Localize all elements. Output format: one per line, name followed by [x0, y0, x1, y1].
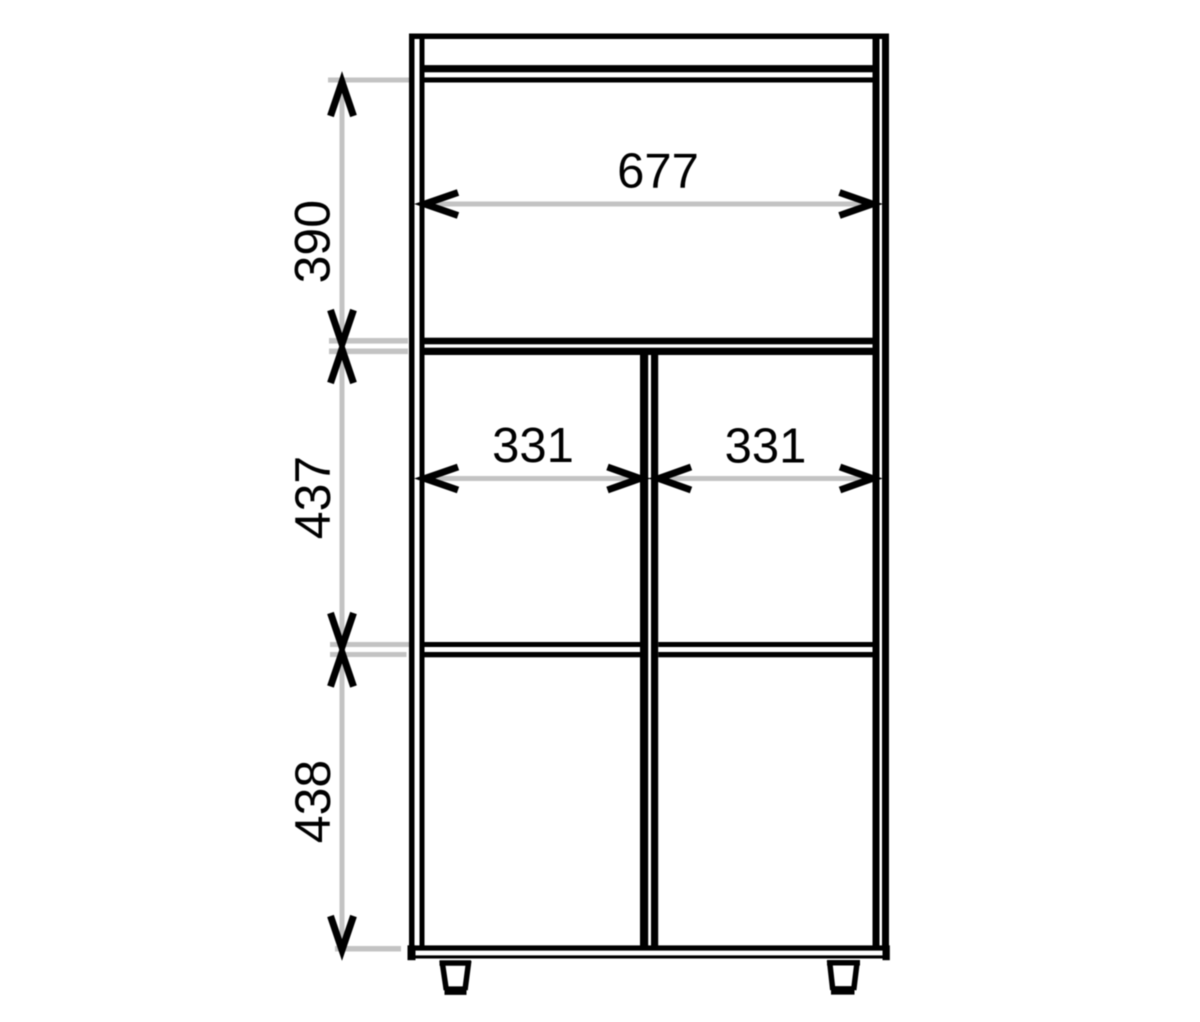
- svg-text:437: 437: [285, 456, 341, 539]
- svg-text:331: 331: [725, 420, 807, 474]
- svg-text:390: 390: [285, 200, 341, 283]
- svg-text:677: 677: [617, 145, 699, 199]
- svg-text:438: 438: [285, 760, 341, 843]
- svg-text:331: 331: [492, 419, 574, 473]
